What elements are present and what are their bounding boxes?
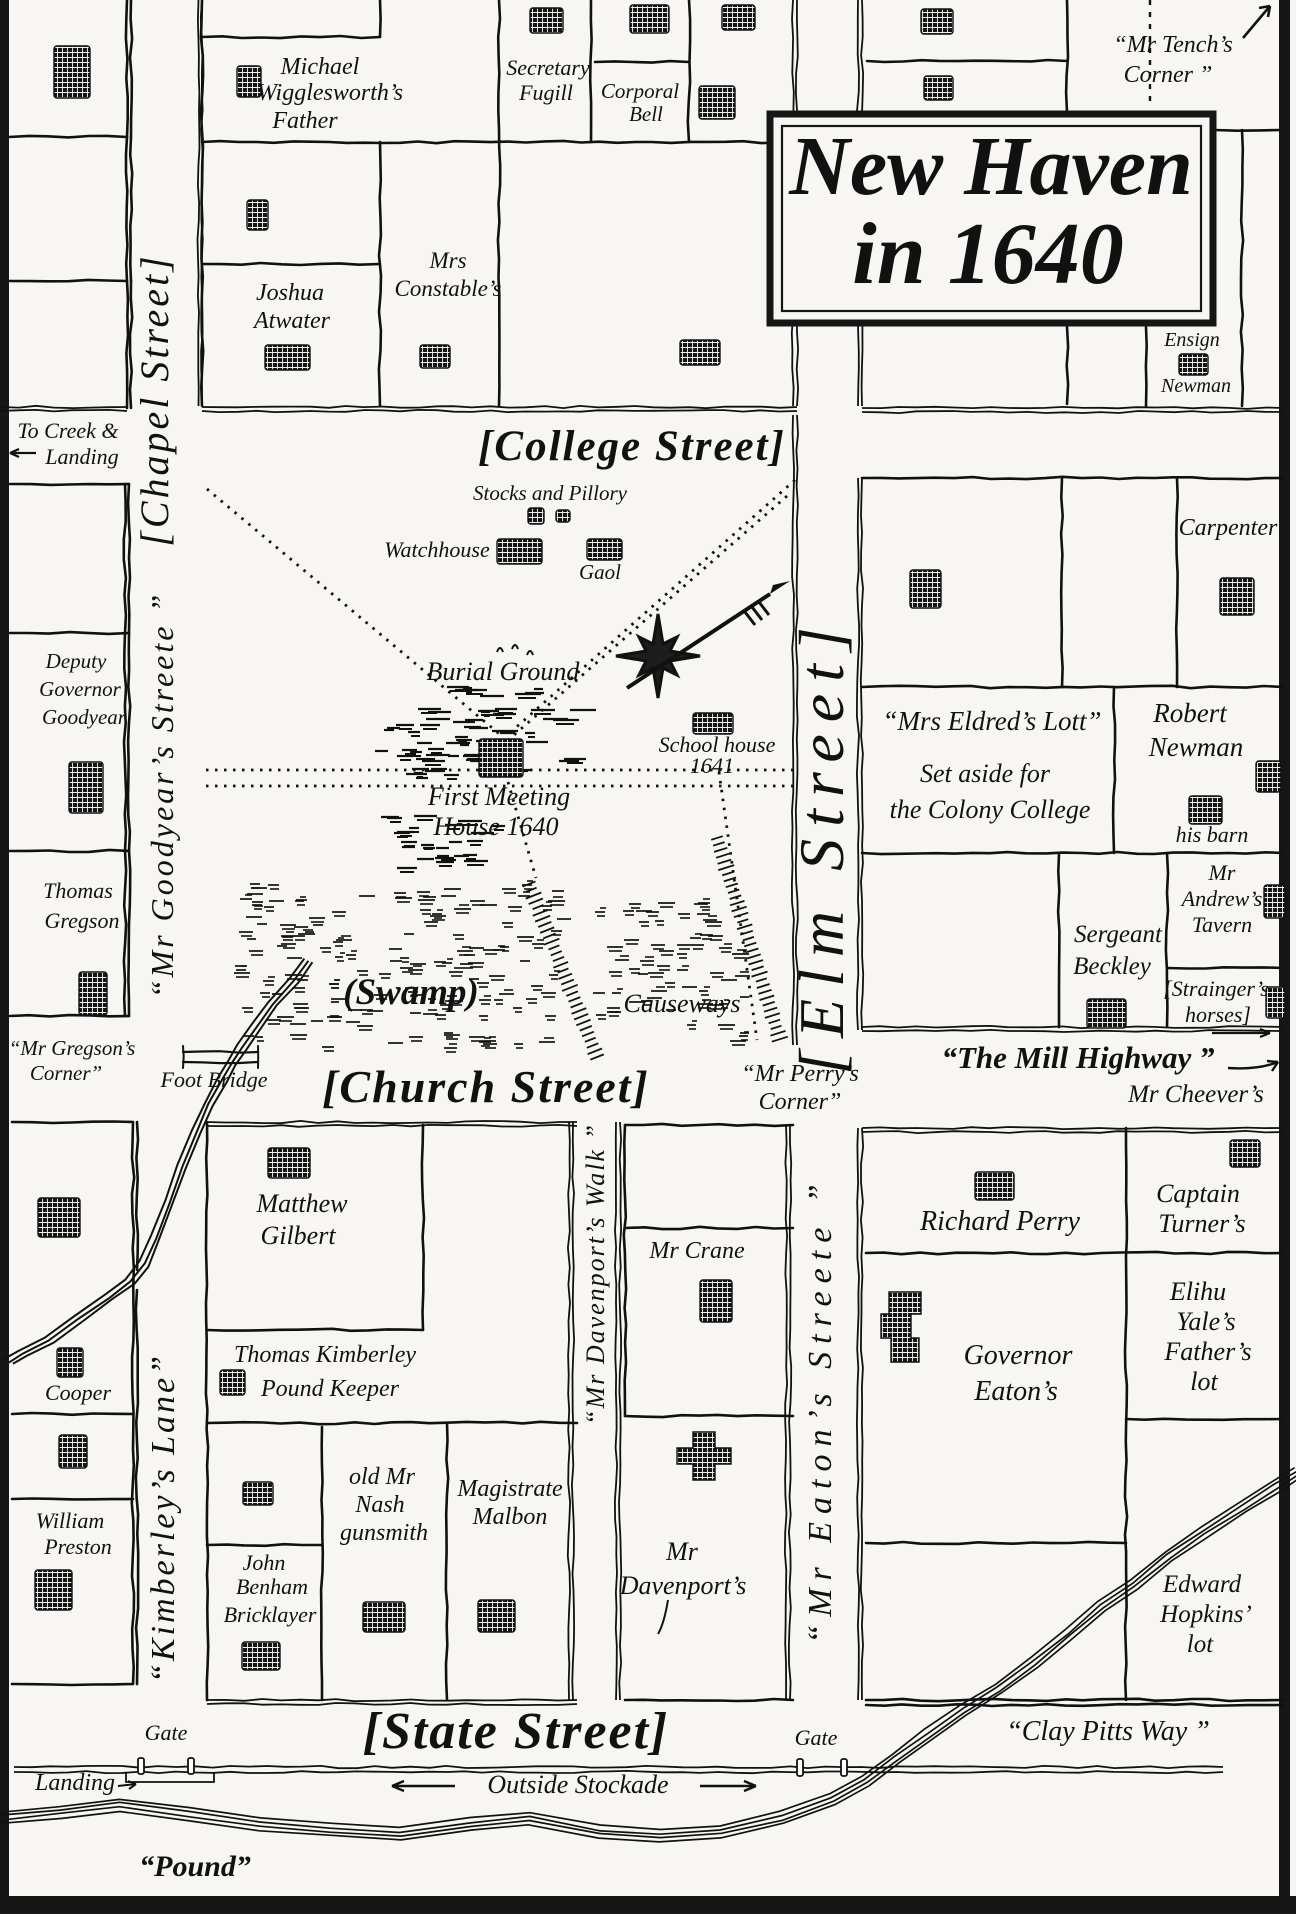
svg-text:Magistrate: Magistrate bbox=[456, 1476, 563, 1502]
svg-text:Landing: Landing bbox=[34, 1770, 115, 1796]
svg-text:Tavern: Tavern bbox=[1192, 912, 1252, 937]
svg-text:Corner ”: Corner ” bbox=[1124, 62, 1213, 88]
svg-text:Elihu: Elihu bbox=[1169, 1277, 1226, 1306]
svg-text:Gilbert: Gilbert bbox=[260, 1221, 336, 1250]
svg-text:Cooper: Cooper bbox=[45, 1380, 111, 1405]
svg-text:Gaol: Gaol bbox=[579, 560, 621, 584]
svg-text:Burial Ground: Burial Ground bbox=[427, 657, 581, 686]
svg-text:lot: lot bbox=[1187, 1631, 1214, 1658]
svg-text:lot: lot bbox=[1190, 1367, 1218, 1396]
svg-text:Pound Keeper: Pound Keeper bbox=[260, 1376, 400, 1402]
svg-text:in 1640: in 1640 bbox=[852, 206, 1123, 303]
svg-text:Thomas: Thomas bbox=[43, 878, 113, 903]
svg-text:Fugill: Fugill bbox=[518, 80, 573, 105]
svg-text:gunsmith: gunsmith bbox=[340, 1520, 428, 1546]
svg-text:Bricklayer: Bricklayer bbox=[224, 1602, 317, 1627]
svg-text:Causeways: Causeways bbox=[624, 989, 741, 1018]
svg-text:his barn: his barn bbox=[1176, 822, 1249, 847]
svg-text:Mr Crane: Mr Crane bbox=[648, 1238, 745, 1264]
svg-text:Sergeant: Sergeant bbox=[1074, 921, 1163, 948]
svg-text:Atwater: Atwater bbox=[252, 308, 331, 334]
svg-text:Matthew: Matthew bbox=[256, 1189, 349, 1218]
svg-text:Davenport’s: Davenport’s bbox=[619, 1571, 747, 1600]
svg-text:Turner’s: Turner’s bbox=[1158, 1209, 1245, 1238]
svg-text:Carpenter: Carpenter bbox=[1179, 515, 1278, 541]
svg-text:“Mr Eaton’s Streete ”: “Mr Eaton’s Streete ” bbox=[802, 1176, 839, 1643]
svg-text:Corner”: Corner” bbox=[30, 1061, 102, 1085]
svg-text:Benham: Benham bbox=[236, 1574, 308, 1599]
svg-text:“Pound”: “Pound” bbox=[139, 1850, 251, 1883]
svg-text:Stocks and Pillory: Stocks and Pillory bbox=[473, 481, 628, 505]
svg-text:[Church Street]: [Church Street] bbox=[322, 1061, 650, 1112]
svg-text:Wigglesworth’s: Wigglesworth’s bbox=[257, 80, 403, 106]
svg-text:Ensign: Ensign bbox=[1163, 329, 1220, 351]
svg-text:Landing: Landing bbox=[44, 444, 118, 469]
svg-text:Robert: Robert bbox=[1152, 698, 1228, 728]
svg-text:Father’s: Father’s bbox=[1163, 1337, 1251, 1366]
svg-text:Mrs: Mrs bbox=[428, 248, 466, 273]
svg-text:Mr: Mr bbox=[665, 1537, 699, 1566]
svg-text:[State Street]: [State Street] bbox=[363, 1703, 670, 1760]
svg-text:“Kimberley’s Lane”: “Kimberley’s Lane” bbox=[145, 1353, 182, 1683]
svg-text:Governor: Governor bbox=[39, 677, 121, 701]
svg-text:“Mr Davenport’s Walk ”: “Mr Davenport’s Walk ” bbox=[581, 1123, 610, 1425]
svg-text:John: John bbox=[243, 1550, 286, 1575]
svg-text:(Swamp): (Swamp) bbox=[343, 972, 479, 1013]
svg-text:First Meeting: First Meeting bbox=[427, 782, 570, 811]
svg-text:“Mr Perry’s: “Mr Perry’s bbox=[741, 1061, 859, 1087]
svg-text:Newman: Newman bbox=[1148, 732, 1244, 762]
svg-text:Malbon: Malbon bbox=[472, 1504, 548, 1530]
svg-text:Bell: Bell bbox=[629, 102, 663, 126]
svg-text:[Elm Street]: [Elm Street] bbox=[786, 615, 857, 1075]
svg-text:“Clay Pitts Way ”: “Clay Pitts Way ” bbox=[1006, 1716, 1210, 1747]
svg-text:Nash: Nash bbox=[354, 1492, 404, 1518]
svg-text:Mr Cheever’s: Mr Cheever’s bbox=[1127, 1081, 1264, 1108]
svg-text:the Colony College: the Colony College bbox=[890, 795, 1091, 824]
svg-text:“The Mill Highway ”: “The Mill Highway ” bbox=[942, 1040, 1215, 1075]
svg-text:Beckley: Beckley bbox=[1073, 953, 1152, 980]
svg-text:Constable’s: Constable’s bbox=[395, 276, 502, 301]
svg-text:horses]: horses] bbox=[1185, 1002, 1251, 1027]
svg-text:Newman: Newman bbox=[1160, 375, 1231, 397]
svg-text:[Strainger’s: [Strainger’s bbox=[1163, 976, 1269, 1001]
svg-text:Gate: Gate bbox=[145, 1720, 188, 1745]
svg-text:Thomas Kimberley: Thomas Kimberley bbox=[234, 1342, 416, 1368]
svg-text:Foot Bridge: Foot Bridge bbox=[160, 1067, 268, 1092]
svg-text:Father: Father bbox=[271, 108, 338, 134]
svg-text:“Mrs Eldred’s Lott”: “Mrs Eldred’s Lott” bbox=[882, 706, 1101, 736]
svg-text:“Mr Gregson’s: “Mr Gregson’s bbox=[9, 1036, 136, 1060]
svg-text:Captain: Captain bbox=[1156, 1179, 1240, 1208]
svg-text:old Mr: old Mr bbox=[349, 1464, 416, 1490]
svg-text:Preston: Preston bbox=[43, 1534, 112, 1559]
svg-text:New Haven: New Haven bbox=[788, 120, 1193, 213]
svg-text:Richard Perry: Richard Perry bbox=[919, 1206, 1080, 1237]
svg-text:“Mr Goodyear’s Streete ”: “Mr Goodyear’s Streete ” bbox=[144, 592, 180, 999]
svg-text:To Creek &: To Creek & bbox=[17, 418, 119, 443]
svg-text:Corporal: Corporal bbox=[601, 79, 679, 103]
svg-text:Watchhouse: Watchhouse bbox=[384, 537, 490, 562]
svg-text:Corner”: Corner” bbox=[759, 1089, 842, 1115]
svg-text:“Mr Tench’s: “Mr Tench’s bbox=[1113, 32, 1232, 58]
svg-text:Gate: Gate bbox=[795, 1725, 838, 1750]
svg-text:Outside Stockade: Outside Stockade bbox=[487, 1770, 668, 1799]
svg-text:Goodyear: Goodyear bbox=[42, 705, 127, 729]
svg-text:William: William bbox=[36, 1508, 104, 1533]
svg-text:Edward: Edward bbox=[1162, 1571, 1242, 1598]
svg-text:Mr: Mr bbox=[1208, 860, 1236, 885]
svg-text:Secretary: Secretary bbox=[506, 55, 590, 80]
svg-text:[College Street]: [College Street] bbox=[478, 423, 786, 470]
svg-text:Deputy: Deputy bbox=[45, 649, 107, 673]
svg-text:Hopkins’: Hopkins’ bbox=[1159, 1601, 1252, 1628]
svg-text:Governor: Governor bbox=[964, 1340, 1073, 1371]
svg-text:Set aside for: Set aside for bbox=[920, 759, 1051, 788]
svg-text:1641: 1641 bbox=[690, 753, 734, 778]
svg-text:[Chapel Street]: [Chapel Street] bbox=[132, 253, 177, 547]
svg-text:Yale’s: Yale’s bbox=[1176, 1307, 1235, 1336]
svg-text:Eaton’s: Eaton’s bbox=[973, 1376, 1058, 1407]
svg-text:Michael: Michael bbox=[280, 54, 360, 80]
svg-text:Andrew’s: Andrew’s bbox=[1180, 886, 1263, 911]
svg-text:Gregson: Gregson bbox=[45, 908, 120, 933]
svg-text:Joshua: Joshua bbox=[256, 280, 324, 306]
